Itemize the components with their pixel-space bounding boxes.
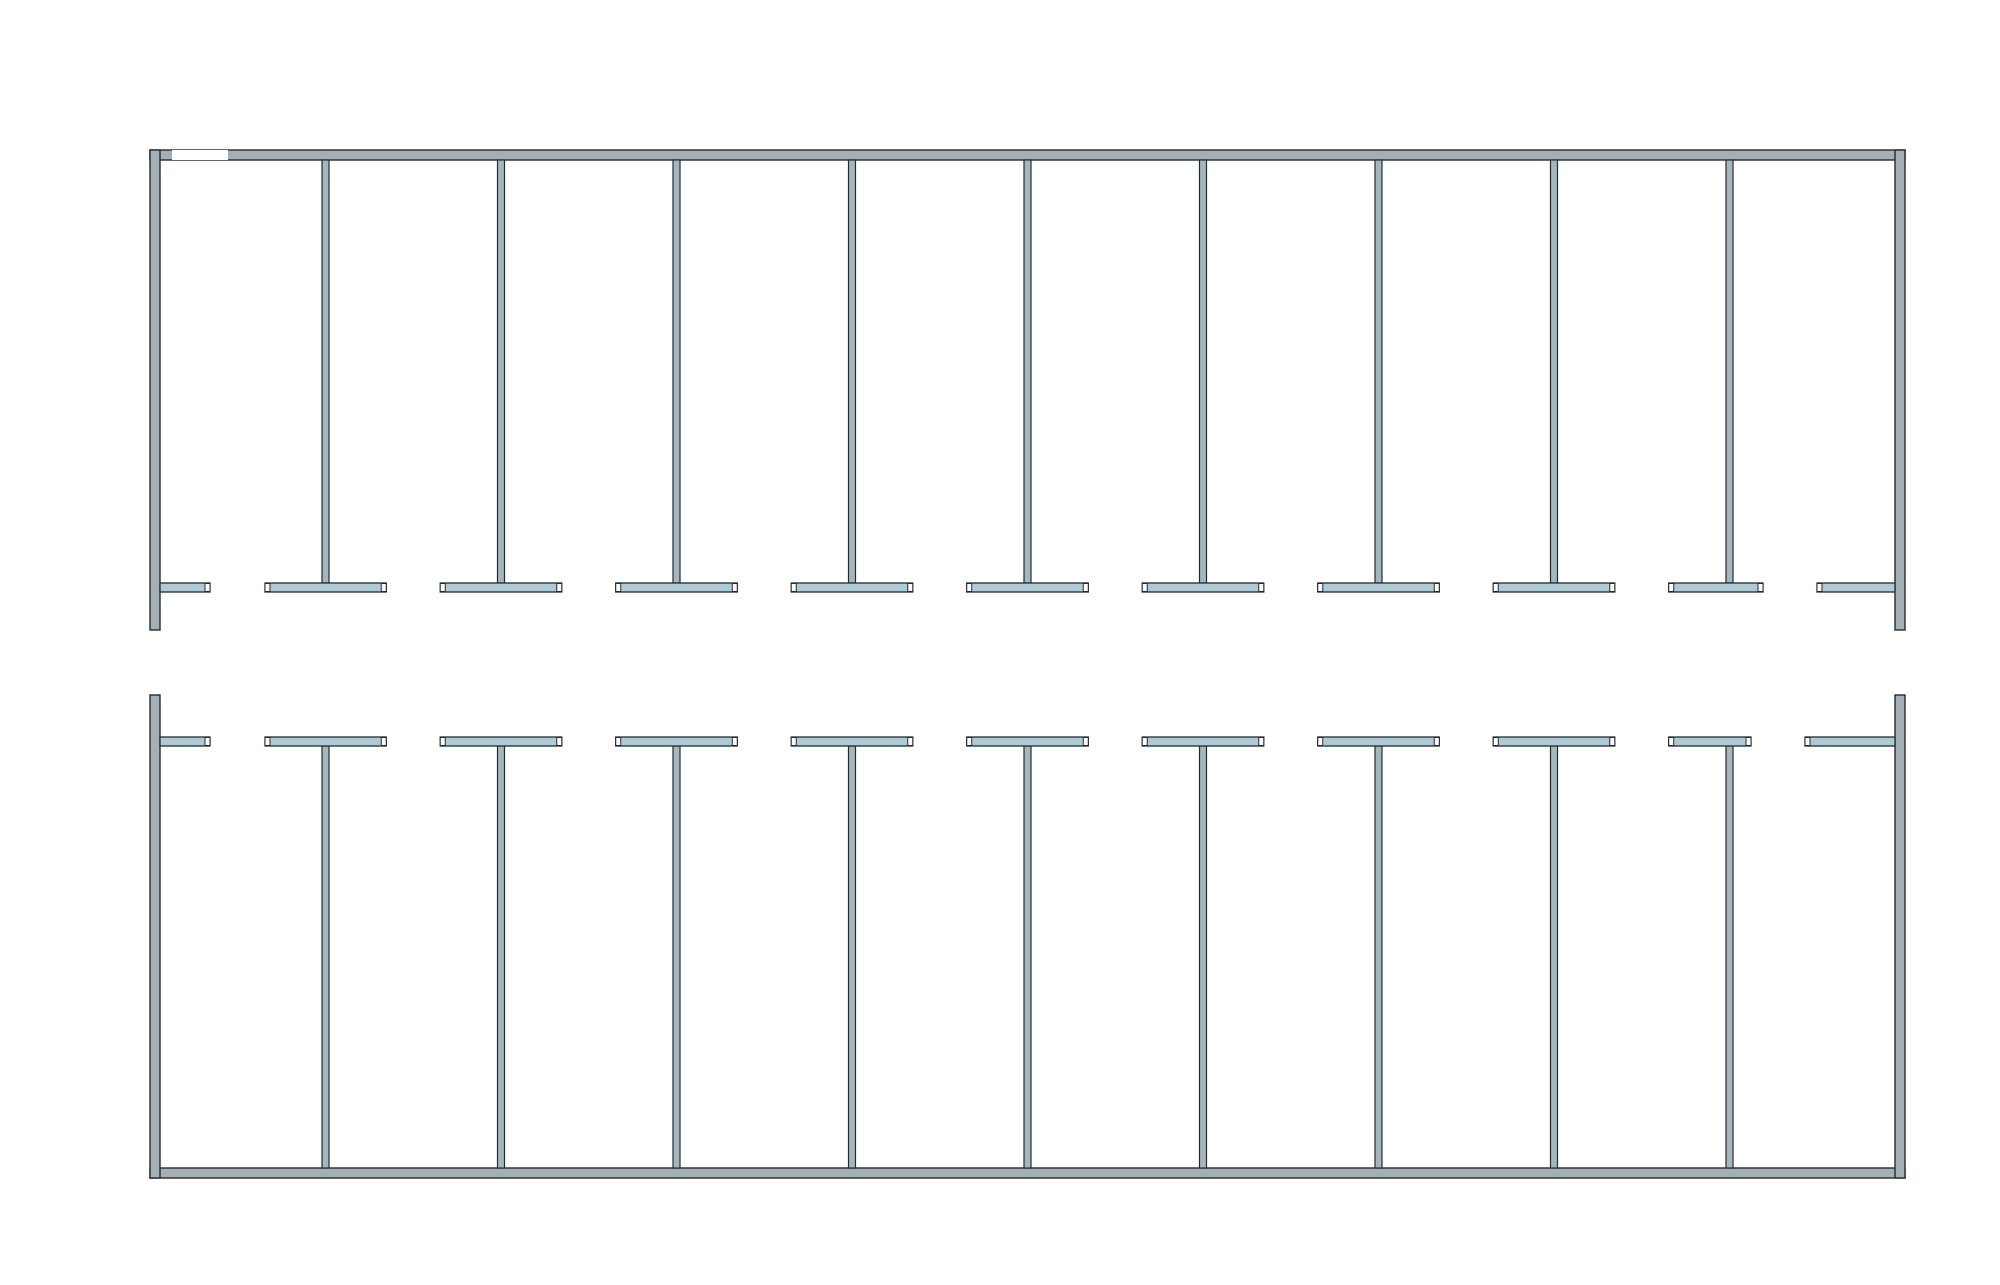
door-jamb-cap bbox=[1318, 738, 1323, 746]
corridor-wall-upper bbox=[160, 583, 210, 592]
door-jamb-cap bbox=[1669, 584, 1674, 592]
floor-plan-svg bbox=[0, 0, 2000, 1285]
door-jamb-cap bbox=[1746, 738, 1751, 746]
corridor-wall-lower bbox=[440, 737, 562, 746]
door-jamb-cap bbox=[1805, 738, 1810, 746]
corridor-wall-lower bbox=[1493, 737, 1615, 746]
corridor-wall-upper bbox=[1318, 583, 1440, 592]
corridor-wall-lower bbox=[160, 737, 210, 746]
door-jamb-cap bbox=[205, 738, 210, 746]
corridor-wall-upper bbox=[1142, 583, 1264, 592]
door-jamb-cap bbox=[1817, 584, 1822, 592]
door-jamb-cap bbox=[1318, 584, 1323, 592]
corridor-wall-upper bbox=[791, 583, 913, 592]
partition-wall bbox=[849, 746, 856, 1168]
partition-wall bbox=[673, 160, 680, 583]
partition-wall bbox=[1726, 746, 1733, 1168]
partition-wall bbox=[1375, 746, 1382, 1168]
door-jamb-cap bbox=[967, 738, 972, 746]
door-jamb-cap bbox=[381, 738, 386, 746]
door-jamb-cap bbox=[1493, 738, 1498, 746]
exterior-wall-right bbox=[1895, 695, 1905, 1178]
door-jamb-cap bbox=[557, 584, 562, 592]
corridor-wall-upper bbox=[616, 583, 738, 592]
windows-group bbox=[172, 150, 228, 160]
partition-wall bbox=[1375, 160, 1382, 583]
exterior-wall-left bbox=[150, 695, 160, 1178]
floor-plan-canvas bbox=[0, 0, 2000, 1285]
partition-wall bbox=[1551, 746, 1558, 1168]
partition-wall bbox=[1024, 160, 1031, 583]
door-jamb-cap bbox=[791, 738, 796, 746]
exterior-wall-right bbox=[1895, 150, 1905, 630]
door-jamb-cap bbox=[1142, 738, 1147, 746]
partition-wall bbox=[1551, 160, 1558, 583]
partition-wall bbox=[849, 160, 856, 583]
door-jamb-cap bbox=[1669, 738, 1674, 746]
corridor-wall-upper bbox=[967, 583, 1089, 592]
door-jamb-cap bbox=[791, 584, 796, 592]
window bbox=[172, 150, 228, 160]
door-jamb-cap bbox=[616, 738, 621, 746]
corridor-wall-upper bbox=[1493, 583, 1615, 592]
partition-wall bbox=[498, 160, 505, 583]
door-jamb-cap bbox=[440, 738, 445, 746]
door-jamb-cap bbox=[265, 738, 270, 746]
corridor-wall-lower bbox=[791, 737, 913, 746]
door-jamb-cap bbox=[1083, 738, 1088, 746]
corridor-wall-lower bbox=[616, 737, 738, 746]
exterior-wall-top bbox=[150, 150, 1905, 160]
door-jamb-cap bbox=[440, 584, 445, 592]
partition-wall bbox=[1024, 746, 1031, 1168]
corridor-wall-upper bbox=[440, 583, 562, 592]
corridor-wall-lower bbox=[967, 737, 1089, 746]
partition-wall bbox=[1726, 160, 1733, 583]
corridor-wall-lower bbox=[1318, 737, 1440, 746]
door-jamb-cap bbox=[1259, 584, 1264, 592]
exterior-wall-left bbox=[150, 150, 160, 630]
corridor-wall-lower bbox=[1142, 737, 1264, 746]
corridor-wall-upper bbox=[265, 583, 386, 592]
door-jamb-cap bbox=[381, 584, 386, 592]
door-jamb-cap bbox=[1493, 584, 1498, 592]
corridor-wall-lower bbox=[1805, 737, 1895, 746]
corridor-wall-lower bbox=[265, 737, 386, 746]
partition-wall bbox=[498, 746, 505, 1168]
partition-wall bbox=[1200, 746, 1207, 1168]
door-jamb-cap bbox=[1434, 584, 1439, 592]
door-jamb-cap bbox=[557, 738, 562, 746]
partition-wall bbox=[322, 160, 329, 583]
door-jamb-cap bbox=[908, 584, 913, 592]
door-jamb-cap bbox=[908, 738, 913, 746]
partition-wall bbox=[1200, 160, 1207, 583]
door-jamb-cap bbox=[1610, 584, 1615, 592]
corridor-wall-upper bbox=[1817, 583, 1895, 592]
door-jamb-cap bbox=[732, 584, 737, 592]
door-jamb-cap bbox=[1259, 738, 1264, 746]
door-jamb-cap bbox=[732, 738, 737, 746]
corridor-wall-lower bbox=[1669, 737, 1751, 746]
door-jamb-cap bbox=[1083, 584, 1088, 592]
door-jamb-cap bbox=[1758, 584, 1763, 592]
door-jamb-cap bbox=[967, 584, 972, 592]
door-jamb-cap bbox=[1142, 584, 1147, 592]
partition-wall bbox=[673, 746, 680, 1168]
walls-group bbox=[150, 150, 1905, 1178]
door-jamb-cap bbox=[616, 584, 621, 592]
corridor-wall-upper bbox=[1669, 583, 1763, 592]
partition-wall bbox=[322, 746, 329, 1168]
exterior-wall-bottom bbox=[150, 1168, 1905, 1178]
door-jamb-cap bbox=[1434, 738, 1439, 746]
door-jamb-cap bbox=[205, 584, 210, 592]
door-jamb-cap bbox=[1610, 738, 1615, 746]
door-jamb-cap bbox=[265, 584, 270, 592]
